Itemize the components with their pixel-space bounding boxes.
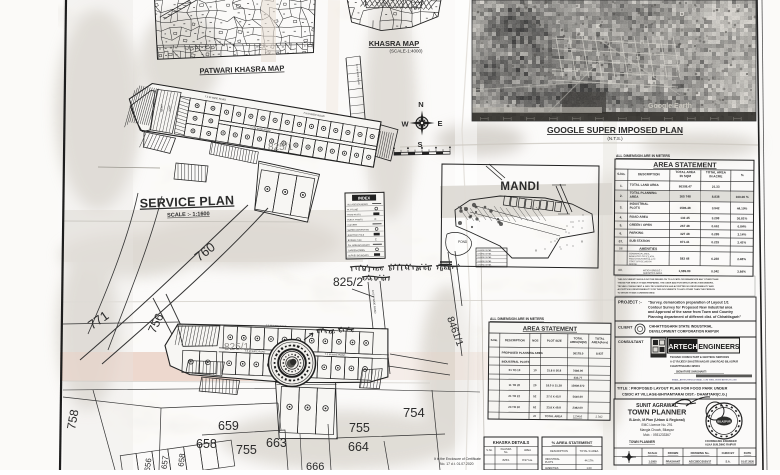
svg-text:Mob. : 0931233367: Mob. : 0931233367: [643, 433, 671, 437]
svg-text:TOTAL % AREA: TOTAL % AREA: [580, 449, 599, 453]
svg-text:NOS: NOS: [532, 338, 538, 342]
svg-text:ENGINEERS: ENGINEERS: [698, 344, 740, 351]
svg-text:SCALE: SCALE: [648, 451, 658, 455]
svg-text:LEGEND DETAIL: LEGEND DETAIL: [478, 263, 492, 266]
svg-text:C: C: [374, 217, 376, 221]
svg-text:656: 656: [143, 457, 154, 470]
svg-text:A-17 RAJEEV SHASTRI NAGAR LINK: A-17 RAJEEV SHASTRI NAGAR LINK ROAD BILA…: [670, 359, 738, 363]
svg-text:2392.00: 2392.00: [573, 406, 584, 410]
svg-text:86308.47: 86308.47: [679, 184, 692, 188]
svg-text:AREA: AREA: [524, 448, 531, 452]
svg-text:MANDI: MANDI: [500, 181, 539, 193]
svg-text:AREA(SQM): AREA(SQM): [570, 340, 587, 344]
svg-text:TECHNO CONSULTANT & GEOTECH SE: TECHNO CONSULTANT & GEOTECH SERVICES: [670, 355, 729, 359]
svg-text:GOOGLE SUPER IMPOSED PLAN: GOOGLE SUPER IMPOSED PLAN: [547, 125, 683, 135]
svg-text:1.00: 1.00: [586, 466, 592, 470]
svg-text:|――|: |――|: [710, 117, 719, 121]
svg-text:GREEN / OPEN: GREEN / OPEN: [629, 223, 652, 227]
svg-text:TOWN PLANNER: TOWN PLANNER: [628, 408, 687, 417]
svg-text:CSIDC AT VILLAGE-BHIYAMTARAI: CSIDC AT VILLAGE-BHIYAMTARAI DIST.- DHAM…: [622, 393, 728, 397]
svg-text:8.937: 8.937: [596, 352, 604, 356]
svg-text:6.84%: 6.84%: [738, 224, 747, 228]
svg-text:08: 08: [619, 247, 623, 251]
svg-text:SURVEY BOUNDARY: SURVEY BOUNDARY: [348, 254, 369, 257]
svg-text:3.84%: 3.84%: [737, 270, 746, 274]
svg-text:|――|: |――|: [595, 117, 604, 121]
svg-text:6.238: 6.238: [711, 257, 719, 261]
svg-text:123456: 123456: [573, 414, 583, 418]
svg-text:ALL DIMENSION ARE IN METERS: ALL DIMENSION ARE IN METERS: [616, 154, 671, 158]
svg-text:AREA STATEMENT: AREA STATEMENT: [653, 162, 717, 170]
svg-text:Contour Survey for Proposed Ne: Contour Survey for Proposed New industri…: [648, 305, 733, 309]
svg-text:and Approval of the same from: and Approval of the same from Town and C…: [648, 310, 733, 314]
svg-text:01.07.2020: 01.07.2020: [741, 460, 755, 464]
svg-text:CONSULTANT: CONSULTANT: [618, 340, 644, 344]
svg-text:01 TO 10: 01 TO 10: [509, 368, 521, 372]
svg-text:PLOTS: PLOTS: [630, 206, 640, 210]
svg-text:|――|: |――|: [687, 117, 696, 121]
svg-text:PRASHANT: PRASHANT: [666, 460, 681, 464]
svg-text:W: W: [401, 120, 409, 129]
svg-text:825/2: 825/2: [333, 275, 363, 289]
svg-text:0.215: 0.215: [711, 240, 719, 244]
svg-text:CHHATTISGARH STATE INDUSTRIAL: CHHATTISGARH STATE INDUSTRIAL: [649, 325, 713, 329]
svg-text:825/1: 825/1: [224, 342, 249, 353]
svg-text:0.285: 0.285: [711, 232, 719, 236]
svg-text:DRAWING No.: DRAWING No.: [691, 451, 710, 455]
svg-text:21 TO 22: 21 TO 22: [508, 394, 520, 398]
svg-text:23.8 X 49.8: 23.8 X 49.8: [546, 405, 561, 409]
svg-text:3.942: 3.942: [712, 206, 720, 210]
svg-text:B.Arch, M.Plan (Urban & Region: B.Arch, M.Plan (Urban & Regional): [629, 418, 685, 422]
svg-text:AREA(Acre): AREA(Acre): [592, 340, 609, 344]
svg-text:ROAD AREA: ROAD AREA: [629, 215, 648, 219]
svg-text:DESCRIPTION: DESCRIPTION: [550, 449, 568, 453]
svg-text:KHASRA DETAILS: KHASRA DETAILS: [493, 440, 530, 445]
svg-text:ELECT. POINTS: ELECT. POINTS: [347, 219, 363, 221]
svg-text:DEVELOPMENT CORPORATION RAIPUR: DEVELOPMENT CORPORATION RAIPUR: [649, 330, 719, 334]
svg-text:8.838: 8.838: [712, 195, 720, 199]
svg-text:S.No.: S.No.: [491, 338, 499, 342]
svg-text:1:1000: 1:1000: [648, 460, 657, 464]
svg-text:36.81%: 36.81%: [737, 216, 748, 220]
svg-text:2.41%: 2.41%: [737, 240, 746, 244]
svg-text:AREA: AREA: [630, 195, 640, 199]
svg-text:08.: 08.: [618, 268, 622, 272]
svg-text:15939.072: 15939.072: [571, 384, 585, 388]
svg-text:327 48: 327 48: [680, 232, 690, 236]
svg-text:664: 664: [348, 440, 369, 454]
svg-text:BORING CUM: BORING CUM: [348, 240, 362, 242]
svg-text:2.14%: 2.14%: [737, 232, 746, 236]
svg-text:825/1: 825/1: [503, 458, 510, 462]
svg-text:133 45: 133 45: [680, 216, 690, 220]
svg-text:SUB STATION: SUB STATION: [629, 239, 650, 243]
svg-text:2.48%: 2.48%: [737, 257, 746, 261]
svg-text:2.: 2.: [620, 194, 623, 198]
svg-text:LEGEND DETAIL: LEGEND DETAIL: [478, 253, 492, 256]
svg-text:|――|: |――|: [526, 117, 535, 121]
svg-text:EMAIL- ARTECHENG@GMAIL.COM W: EMAIL- ARTECHENG@GMAIL.COM WEB- WWW.ARTE…: [672, 379, 737, 382]
svg-text:0.342: 0.342: [711, 269, 719, 273]
svg-text:44.10%: 44.10%: [737, 206, 748, 210]
svg-text:SIGNATURE SHIVSHAKTI: SIGNATURE SHIVSHAKTI: [676, 371, 707, 374]
svg-text:TECHNO CONSULTANT & GEO-TECH S: TECHNO CONSULTANT & GEO-TECH SERVICES HA…: [618, 285, 715, 288]
svg-text:TOTAL AREA: TOTAL AREA: [545, 414, 563, 418]
svg-text:100.00 %: 100.00 %: [736, 195, 749, 199]
svg-text:31.8 X 56.8: 31.8 X 56.8: [547, 368, 562, 372]
svg-text:BILASPUR: BILASPUR: [717, 419, 730, 423]
svg-text:|――|: |――|: [641, 117, 650, 121]
svg-text:VILLAGE BOUNDARY: VILLAGE BOUNDARY: [347, 203, 369, 206]
svg-text:S.No.: S.No.: [617, 172, 625, 176]
svg-text:INDEX: INDEX: [358, 195, 371, 200]
svg-text:7680.00: 7680.00: [573, 369, 584, 373]
svg-text:4.: 4.: [620, 215, 623, 219]
svg-text:663: 663: [266, 436, 287, 450]
svg-text:%: %: [741, 173, 744, 177]
svg-text:TO WHOM IT WAS COMMISSIONED.: TO WHOM IT WAS COMMISSIONED.: [618, 292, 656, 295]
svg-text:LEGEND DETAIL: LEGEND DETAIL: [478, 256, 492, 259]
svg-text:|――|: |――|: [618, 117, 627, 121]
svg-text:CHKD BY: CHKD BY: [722, 451, 735, 455]
svg-text:PROJECT :-: PROJECT :-: [618, 300, 642, 305]
svg-text:754: 754: [403, 405, 425, 420]
svg-text:433.77: 433.77: [574, 376, 583, 380]
svg-text:ACCEPTS NO RESPONSIBILITY FOR: ACCEPTS NO RESPONSIBILITY FOR THIS DOCUM…: [618, 288, 716, 291]
svg-text:583 48: 583 48: [680, 257, 690, 261]
svg-text:CHHATTISGARH 495001: CHHATTISGARH 495001: [670, 364, 700, 368]
svg-text:LEGEND DETAIL: LEGEND DETAIL: [478, 249, 492, 252]
svg-text:AMENITIES: AMENITIES: [639, 247, 658, 251]
svg-text:AMENITIES AREA: AMENITIES AREA: [643, 272, 663, 275]
svg-text:WATER HARVESTING: WATER HARVESTING: [348, 228, 370, 231]
svg-text:1.: 1.: [620, 184, 623, 188]
svg-text:8.97 Ha.: 8.97 Ha.: [522, 458, 533, 462]
svg-text:825/1: 825/1: [268, 142, 293, 153]
svg-text:CLIENT: CLIENT: [618, 325, 633, 330]
svg-text:267 48: 267 48: [680, 224, 690, 228]
svg-text:52: 52: [533, 394, 537, 398]
svg-text:TITLE : PROPOSED LAYOUT PLAN F: TITLE : PROPOSED LAYOUT PLAN FOR FOOD PA…: [617, 387, 728, 391]
svg-text:27.0 X 45.0: 27.0 X 45.0: [547, 394, 562, 398]
svg-text:S.No.: S.No.: [486, 448, 493, 452]
svg-text:C: C: [375, 237, 377, 241]
svg-text:28: 28: [533, 414, 537, 418]
svg-text:CULVERT: CULVERT: [348, 225, 358, 227]
svg-text:"Survey, demarcation preparati: "Survey, demarcation preparation of Layo…: [648, 301, 729, 305]
svg-text:P.H. AREA BOUNDARY: P.H. AREA BOUNDARY: [348, 244, 371, 247]
svg-text:ALKA BUILDING RAIPUR: ALKA BUILDING RAIPUR: [705, 443, 736, 447]
svg-text:PARKING: PARKING: [629, 231, 644, 235]
svg-text:PLOT SIZE: PLOT SIZE: [547, 339, 562, 343]
svg-text:It is the Enclosure of Certifi: It is the Enclosure of Certificate: [434, 457, 481, 461]
svg-text:ARTECH: ARTECH: [668, 344, 697, 351]
svg-text:KHASRA MAP: KHASRA MAP: [369, 39, 420, 48]
svg-text:IN ACRE: IN ACRE: [709, 174, 722, 178]
svg-text:No.: No.: [504, 450, 508, 454]
svg-text:Mangla Chowk, Bilaspur: Mangla Chowk, Bilaspur: [640, 428, 675, 432]
svg-text:DESCRIPTION: DESCRIPTION: [638, 172, 661, 176]
svg-text:DRAWN: DRAWN: [668, 451, 679, 455]
svg-text:IN SQM: IN SQM: [680, 174, 692, 178]
svg-text:44.17%: 44.17%: [585, 459, 594, 463]
svg-text:THOSE FOR WHICH IT WAS PREPARE: THOSE FOR WHICH IT WAS PREPARED. THE USE…: [618, 281, 714, 284]
svg-text:% AREA STATEMENT: % AREA STATEMENT: [552, 440, 593, 445]
svg-text:GARDEN/GREEN: GARDEN/GREEN: [348, 249, 365, 252]
svg-text:5.: 5.: [620, 223, 623, 227]
svg-text:N: N: [418, 100, 423, 109]
svg-text:07.: 07.: [619, 239, 623, 243]
svg-text:Google Earth: Google Earth: [648, 103, 692, 110]
svg-text:|――|: |――|: [503, 117, 512, 121]
svg-text:666: 666: [306, 461, 324, 470]
svg-text:6.: 6.: [620, 231, 623, 235]
svg-text:3.298: 3.298: [712, 216, 720, 220]
svg-text:|――|: |――|: [733, 117, 742, 121]
svg-text:INDUSTRIAL PLOTS: INDUSTRIAL PLOTS: [502, 360, 530, 364]
svg-text:DATE: DATE: [744, 451, 752, 455]
svg-text:18.0 X 31.38: 18.0 X 31.38: [546, 383, 562, 387]
svg-text:AREA STATEMENT: AREA STATEMENT: [523, 326, 578, 333]
svg-text:|――|: |――|: [480, 117, 489, 121]
svg-text:POND: POND: [458, 240, 468, 244]
svg-text:365 748: 365 748: [680, 194, 691, 198]
svg-text:62: 62: [533, 405, 537, 409]
svg-text:|――|: |――|: [664, 117, 673, 121]
svg-text:|――|: |――|: [549, 117, 558, 121]
svg-text:TOWN PLANNER: TOWN PLANNER: [629, 440, 656, 444]
svg-text:1,589.80: 1,589.80: [678, 269, 690, 273]
svg-text:1596.48: 1596.48: [679, 206, 690, 210]
svg-text:AE/CSIDC/2020/17: AE/CSIDC/2020/17: [689, 460, 712, 464]
svg-text:PLOTS: PLOTS: [545, 461, 554, 464]
svg-text:658: 658: [196, 437, 217, 451]
svg-text:11 TO 20: 11 TO 20: [509, 383, 521, 387]
svg-text:|――|: |――|: [572, 117, 581, 121]
svg-text:E: E: [437, 119, 442, 128]
svg-text:S.A.: S.A.: [725, 460, 730, 464]
svg-text:No. 17 d.t. 01.07.2020: No. 17 d.t. 01.07.2020: [440, 462, 474, 466]
svg-text:755: 755: [236, 443, 257, 457]
svg-text:ALL DIMENSION ARE IN METERS: ALL DIMENSION ARE IN METERS: [490, 317, 545, 321]
svg-text:EMC Licence No. 291: EMC Licence No. 291: [641, 423, 672, 427]
svg-text:10: 10: [533, 368, 537, 372]
svg-text:3.: 3.: [620, 205, 623, 209]
svg-text:2.342: 2.342: [595, 415, 602, 419]
svg-text:PROPOSED PLANNING AREA: PROPOSED PLANNING AREA: [502, 351, 544, 355]
svg-text:20: 20: [533, 383, 537, 387]
svg-text:THIS DOCUMENT SHOULD NOT BE RE: THIS DOCUMENT SHOULD NOT BE RELIED ON TO…: [618, 278, 719, 281]
svg-text:871.41: 871.41: [680, 240, 690, 244]
svg-text:0.661: 0.661: [712, 224, 720, 228]
svg-text:755: 755: [349, 421, 370, 435]
svg-text:(N.T.S.): (N.T.S.): [607, 136, 623, 141]
svg-text:ELECTRIC POLE: ELECTRIC POLE: [348, 235, 365, 237]
svg-text:Planning department of differe: Planning department of different dist. o…: [648, 315, 741, 319]
svg-text:21.33: 21.33: [712, 185, 720, 189]
svg-text:ROAD PLOTS: ROAD PLOTS: [347, 213, 361, 216]
svg-text:23 TO 30: 23 TO 30: [508, 405, 520, 409]
svg-text:657: 657: [160, 455, 171, 470]
svg-text:5640.00: 5640.00: [573, 395, 584, 399]
svg-text:(SCALE-1:4000): (SCALE-1:4000): [389, 49, 423, 54]
svg-text:36178.0: 36178.0: [573, 351, 584, 355]
svg-text:659: 659: [218, 419, 239, 433]
svg-text:658: 658: [176, 452, 187, 467]
svg-text:TOTAL LAND AREA: TOTAL LAND AREA: [630, 183, 660, 187]
svg-text:COUNSELING ENGINEER: COUNSELING ENGINEER: [705, 439, 737, 443]
svg-text:LEGEND DETAIL: LEGEND DETAIL: [478, 260, 492, 263]
svg-text:DESCRIPTION: DESCRIPTION: [505, 338, 525, 342]
svg-text:PLOT LINE: PLOT LINE: [347, 209, 358, 211]
